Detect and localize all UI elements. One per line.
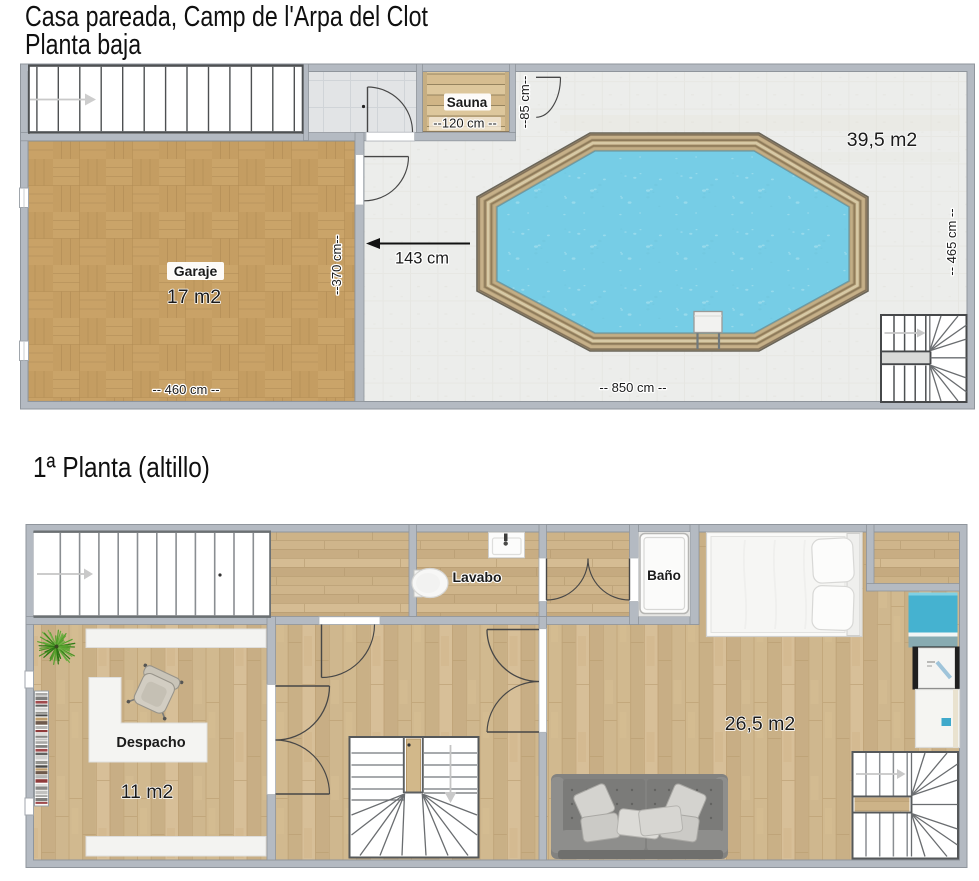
svg-text:-- 850 cm --: -- 850 cm -- <box>599 380 666 395</box>
svg-text:--120 cm --: --120 cm -- <box>433 116 497 131</box>
svg-text:11 m2: 11 m2 <box>121 781 174 803</box>
svg-text:143 cm: 143 cm <box>395 250 449 268</box>
svg-text:17 m2: 17 m2 <box>167 286 221 308</box>
svg-text:Garaje: Garaje <box>174 263 218 279</box>
svg-text:26,5 m2: 26,5 m2 <box>725 713 795 735</box>
svg-text:-- 465 cm --: -- 465 cm -- <box>944 208 959 275</box>
svg-text:Lavabo: Lavabo <box>452 569 501 585</box>
svg-text:Baño: Baño <box>647 568 681 583</box>
svg-text:Despacho: Despacho <box>116 735 185 751</box>
svg-text:-- 460 cm --: -- 460 cm -- <box>152 382 219 397</box>
svg-text:Sauna: Sauna <box>447 95 488 110</box>
svg-text:39,5 m2: 39,5 m2 <box>847 129 917 151</box>
svg-text:--370 cm--: --370 cm-- <box>329 235 344 295</box>
svg-text:--85 cm--: --85 cm-- <box>517 76 532 129</box>
